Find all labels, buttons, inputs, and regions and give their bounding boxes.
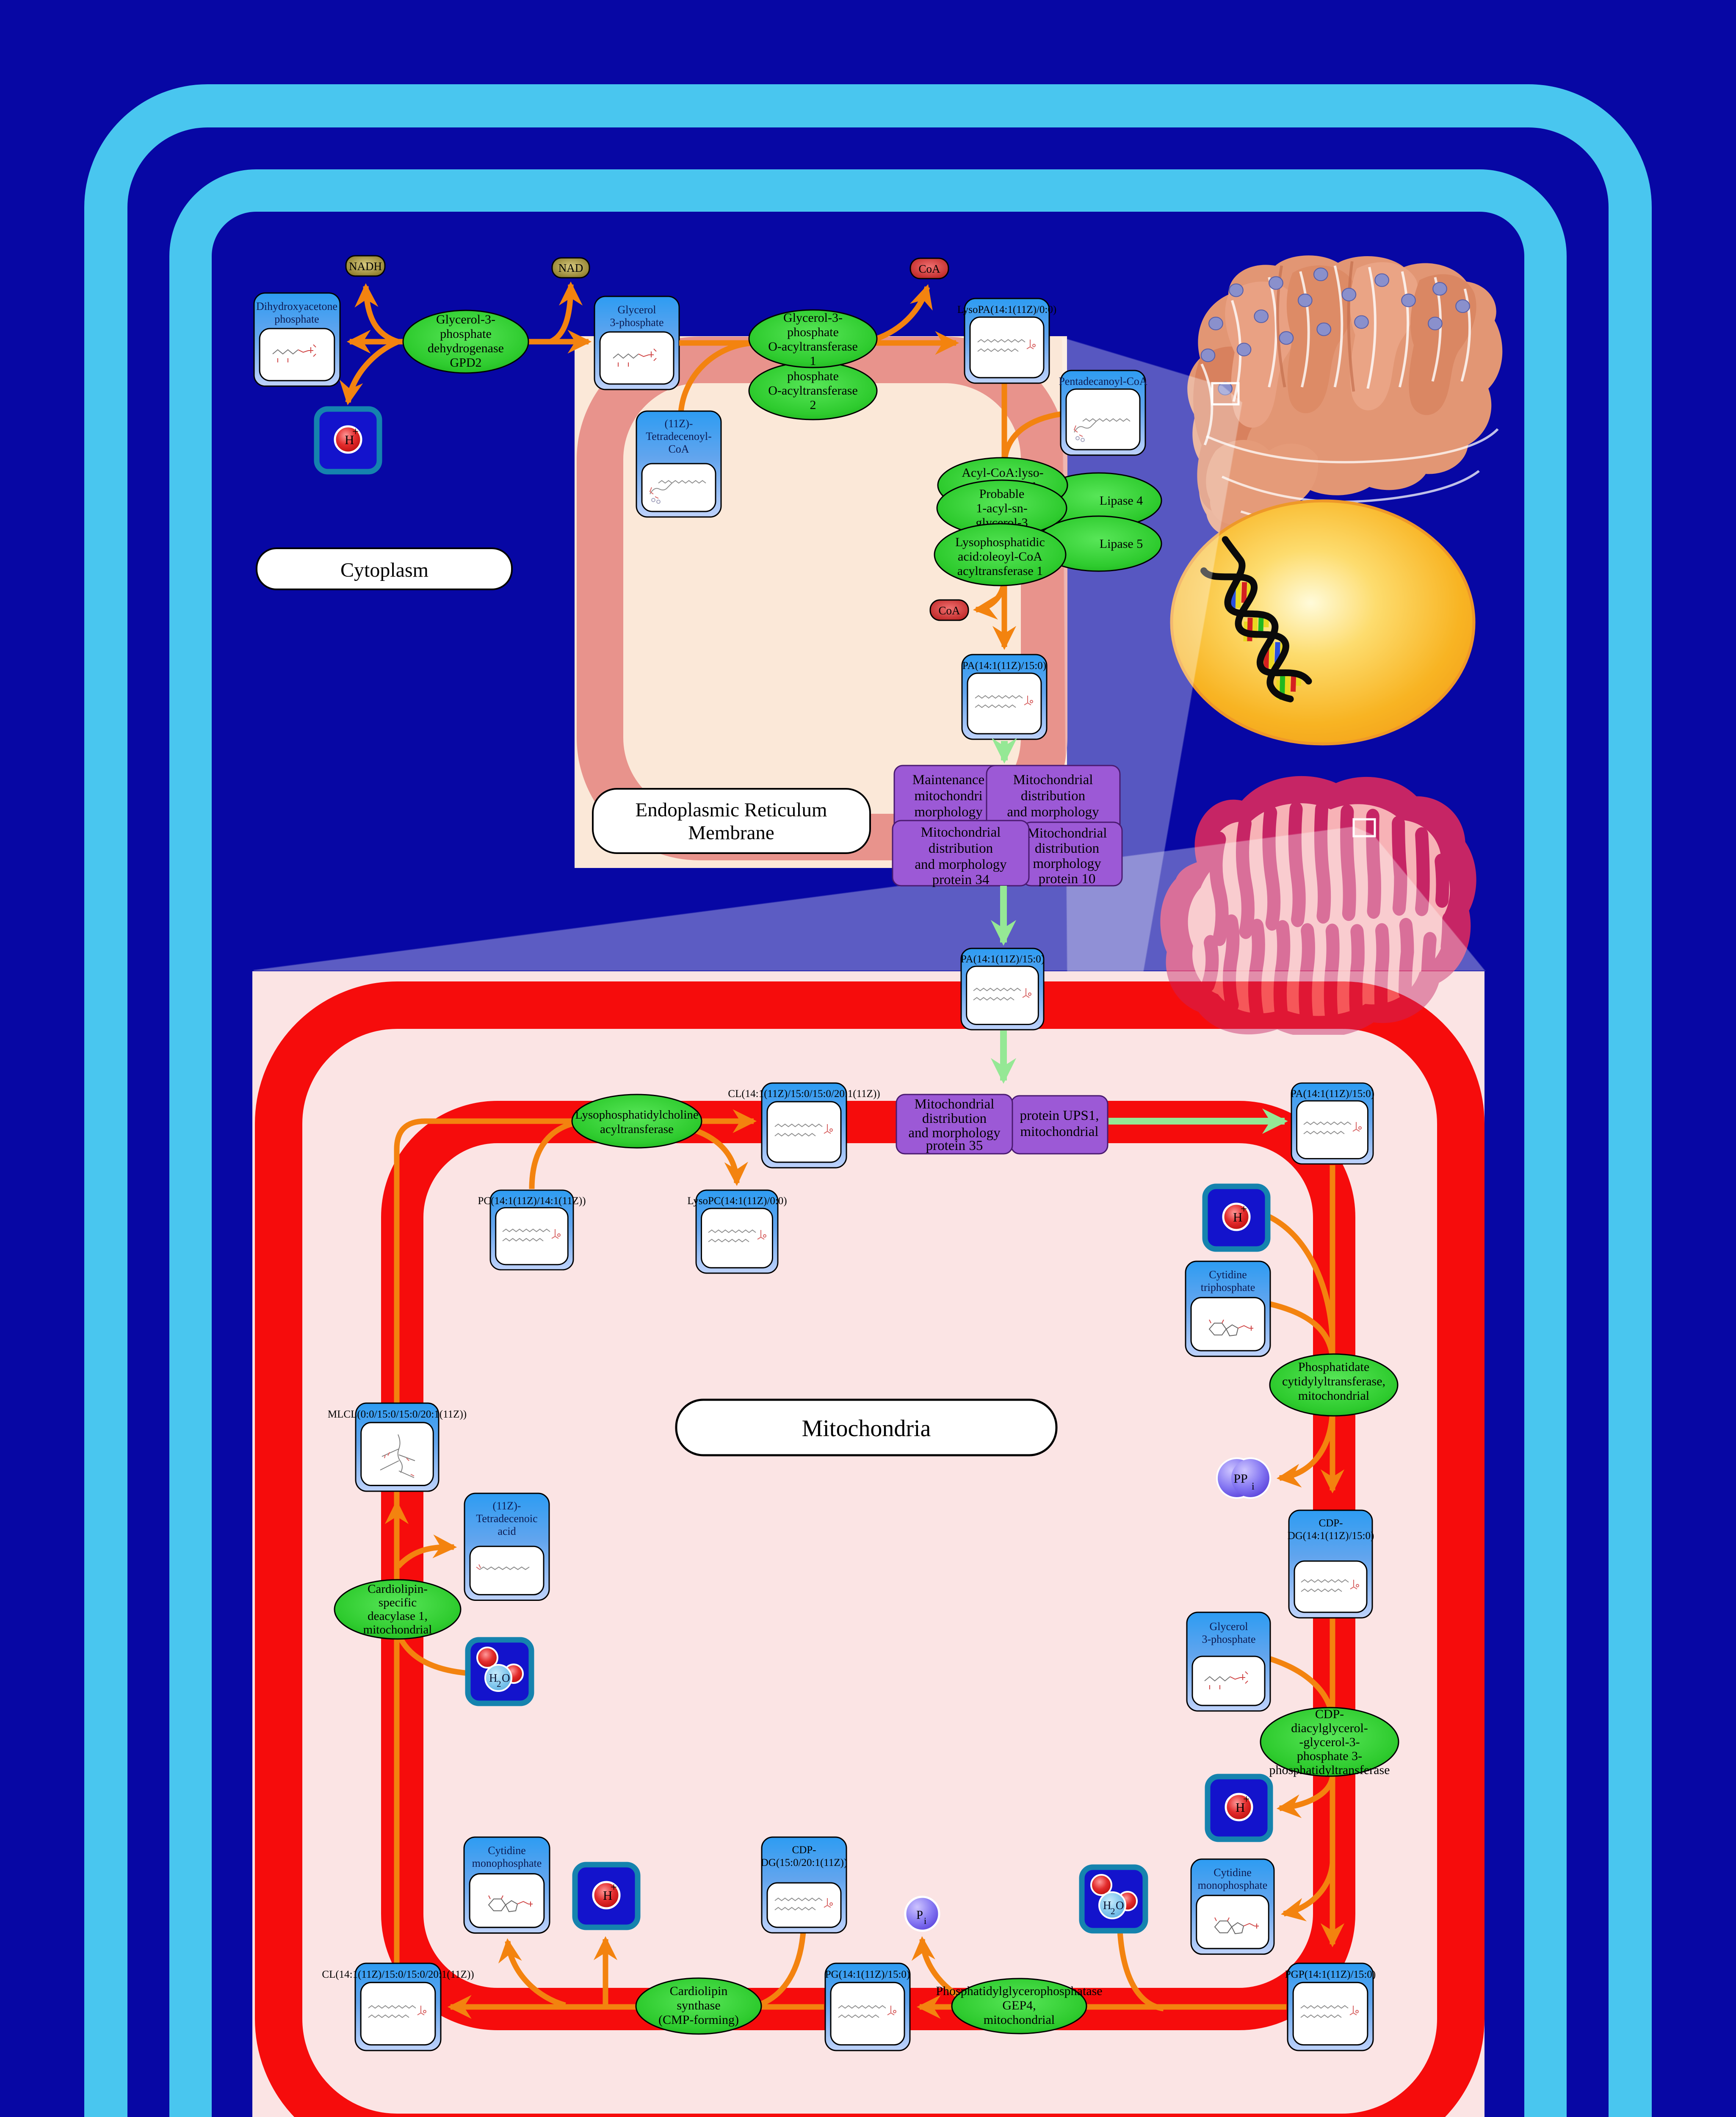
- svg-text:mitochondrial: mitochondrial: [1020, 1124, 1098, 1139]
- svg-text:PP: PP: [1233, 1472, 1247, 1486]
- svg-text:Glycerol: Glycerol: [1210, 1620, 1248, 1633]
- svg-text:distribution: distribution: [922, 1111, 987, 1126]
- svg-text:(11Z)-: (11Z)-: [493, 1500, 521, 1512]
- svg-text:1-acyl-sn-: 1-acyl-sn-: [976, 501, 1028, 515]
- svg-text:3-phosphate: 3-phosphate: [1202, 1633, 1255, 1645]
- svg-text:phosphate 3-: phosphate 3-: [1297, 1749, 1362, 1763]
- svg-text:cytidylyltransferase,: cytidylyltransferase,: [1282, 1374, 1385, 1388]
- svg-text:acyltransferase 1: acyltransferase 1: [957, 564, 1043, 578]
- svg-text:P: P: [916, 1909, 923, 1922]
- svg-text:Dihydroxyacetone: Dihydroxyacetone: [256, 300, 337, 312]
- svg-text:CL(14:1(11Z)/15:0/15:0/20:1(11: CL(14:1(11Z)/15:0/15:0/20:1(11Z)): [728, 1088, 880, 1100]
- svg-text:GPD2: GPD2: [450, 356, 481, 370]
- svg-text:Tetradecenoyl-: Tetradecenoyl-: [646, 430, 712, 442]
- svg-text:and morphology: and morphology: [1007, 804, 1099, 820]
- svg-text:Mitochondrial: Mitochondrial: [921, 825, 1001, 840]
- svg-text:morphology: morphology: [914, 804, 983, 820]
- svg-text:distribution: distribution: [929, 841, 993, 856]
- svg-text:CoA: CoA: [668, 443, 689, 455]
- svg-text:phosphate: phosphate: [440, 327, 492, 341]
- svg-text:PGP(14:1(11Z)/15:0): PGP(14:1(11Z)/15:0): [1285, 1969, 1376, 1980]
- svg-text:Probable: Probable: [979, 487, 1025, 501]
- svg-text:O-acyltransferase: O-acyltransferase: [768, 340, 858, 354]
- svg-text:MLCL(0:0/15:0/15:0/20:1(11Z)): MLCL(0:0/15:0/15:0/20:1(11Z)): [328, 1409, 467, 1420]
- svg-text:dehydrogenase: dehydrogenase: [428, 341, 504, 355]
- svg-text:Glycerol-3-: Glycerol-3-: [436, 312, 495, 326]
- svg-text:protein 10: protein 10: [1039, 871, 1096, 887]
- svg-text:Pentadecanoyl-CoA: Pentadecanoyl-CoA: [1059, 375, 1147, 387]
- svg-text:O-acyltransferase: O-acyltransferase: [768, 384, 858, 398]
- svg-text:Mitochondrial: Mitochondrial: [1013, 772, 1093, 788]
- svg-text:Lysophosphatidylcholine: Lysophosphatidylcholine: [575, 1108, 699, 1122]
- svg-text:monophosphate: monophosphate: [1198, 1879, 1268, 1891]
- svg-text:monophosphate: monophosphate: [472, 1857, 542, 1869]
- svg-text:LysoPA(14:1(11Z)/0:0): LysoPA(14:1(11Z)/0:0): [957, 304, 1056, 315]
- svg-text:phosphate: phosphate: [274, 313, 319, 325]
- svg-text:(CMP-forming): (CMP-forming): [658, 2013, 739, 2027]
- svg-text:PA(14:1(11Z)/15:0): PA(14:1(11Z)/15:0): [961, 953, 1045, 965]
- svg-text:mitochondrial: mitochondrial: [363, 1623, 432, 1636]
- svg-text:Cytidine: Cytidine: [488, 1844, 526, 1857]
- svg-text:phosphatidyltransferase: phosphatidyltransferase: [1269, 1763, 1390, 1777]
- svg-text:CDP-: CDP-: [1319, 1517, 1343, 1529]
- svg-text:Mitochondrial: Mitochondrial: [915, 1097, 995, 1112]
- svg-text:NAD: NAD: [558, 262, 583, 274]
- svg-text:CoA: CoA: [918, 263, 940, 275]
- svg-text:diacylglycerol-: diacylglycerol-: [1291, 1721, 1368, 1735]
- svg-text:Phosphatidate: Phosphatidate: [1298, 1360, 1369, 1374]
- svg-text:specific: specific: [379, 1596, 417, 1609]
- svg-text:LysoPC(14:1(11Z)/0:0): LysoPC(14:1(11Z)/0:0): [687, 1195, 787, 1207]
- svg-text:1: 1: [810, 354, 816, 368]
- svg-text:mitochondrial: mitochondrial: [984, 2013, 1055, 2027]
- svg-text:DG(15:0/20:1(11Z)): DG(15:0/20:1(11Z)): [761, 1857, 848, 1868]
- svg-text:protein 34: protein 34: [932, 872, 990, 887]
- svg-text:PA(14:1(11Z)/15:0): PA(14:1(11Z)/15:0): [962, 660, 1046, 672]
- svg-text:Maintenance: Maintenance: [912, 772, 984, 788]
- svg-text:Tetradecenoic: Tetradecenoic: [476, 1512, 537, 1525]
- svg-text:acid:oleoyl-CoA: acid:oleoyl-CoA: [958, 550, 1042, 564]
- svg-text:Lysophosphatidic: Lysophosphatidic: [955, 535, 1045, 549]
- svg-text:phosphate: phosphate: [787, 369, 839, 383]
- svg-text:mitochondri: mitochondri: [914, 788, 982, 804]
- svg-text:CDP-: CDP-: [1315, 1707, 1344, 1721]
- svg-text:Cytoplasm: Cytoplasm: [340, 559, 428, 581]
- svg-text:acyltransferase: acyltransferase: [600, 1122, 674, 1136]
- svg-text:Lipase 4: Lipase 4: [1100, 494, 1143, 508]
- svg-text:Glycerol: Glycerol: [618, 304, 656, 316]
- svg-text:PA(14:1(11Z)/15:0): PA(14:1(11Z)/15:0): [1291, 1088, 1374, 1100]
- svg-text:CoA: CoA: [938, 604, 960, 617]
- svg-text:PC(14:1(11Z)/14:1(11Z)): PC(14:1(11Z)/14:1(11Z)): [478, 1195, 586, 1207]
- svg-text:protein 35: protein 35: [926, 1138, 983, 1153]
- svg-text:Cytidine: Cytidine: [1209, 1269, 1247, 1281]
- svg-text:Membrane: Membrane: [688, 822, 774, 844]
- svg-text:Mitochondrial: Mitochondrial: [1027, 826, 1107, 841]
- svg-text:Cardiolipin-: Cardiolipin-: [368, 1582, 428, 1596]
- svg-text:DG(14:1(11Z)/15:0): DG(14:1(11Z)/15:0): [1288, 1530, 1374, 1542]
- svg-text:acid: acid: [498, 1525, 516, 1537]
- svg-text:phosphate: phosphate: [787, 325, 839, 339]
- svg-text:distribution: distribution: [1035, 841, 1099, 856]
- svg-text:deacylase 1,: deacylase 1,: [368, 1609, 428, 1623]
- svg-text:distribution: distribution: [1021, 788, 1085, 804]
- svg-text:Cardiolipin: Cardiolipin: [670, 1984, 728, 1998]
- svg-text:protein UPS1,: protein UPS1,: [1020, 1108, 1099, 1123]
- svg-text:3-phosphate: 3-phosphate: [610, 316, 663, 329]
- svg-text:Mitochondria: Mitochondria: [802, 1415, 931, 1442]
- svg-text:-glycerol-3-: -glycerol-3-: [1299, 1735, 1360, 1749]
- svg-text:Endoplasmic Reticulum: Endoplasmic Reticulum: [636, 799, 827, 821]
- svg-text:i: i: [1252, 1481, 1255, 1492]
- svg-text:PG(14:1(11Z)/15:0): PG(14:1(11Z)/15:0): [825, 1969, 910, 1980]
- svg-text:Acyl-CoA:lyso-: Acyl-CoA:lyso-: [962, 466, 1043, 480]
- svg-text:GEP4,: GEP4,: [1002, 1998, 1036, 2012]
- svg-text:Glycerol-3-: Glycerol-3-: [783, 311, 843, 325]
- svg-text:Lipase 5: Lipase 5: [1100, 537, 1143, 551]
- svg-text:i: i: [924, 1915, 926, 1926]
- svg-text:(11Z)-: (11Z)-: [665, 417, 693, 430]
- svg-text:NADH: NADH: [349, 260, 382, 273]
- svg-text:CDP-: CDP-: [792, 1844, 816, 1856]
- svg-text:CL(14:1(11Z)/15:0/15:0/20:1(11: CL(14:1(11Z)/15:0/15:0/20:1(11Z)): [322, 1969, 474, 1980]
- svg-text:Cytidine: Cytidine: [1214, 1866, 1252, 1879]
- svg-text:triphosphate: triphosphate: [1201, 1281, 1255, 1293]
- svg-text:2: 2: [810, 398, 816, 412]
- svg-text:synthase: synthase: [677, 1998, 720, 2012]
- svg-text:Phosphatidylglycerophosphatase: Phosphatidylglycerophosphatase: [936, 1984, 1102, 1998]
- svg-text:morphology: morphology: [1033, 856, 1101, 871]
- svg-text:and morphology: and morphology: [915, 857, 1007, 872]
- svg-text:mitochondrial: mitochondrial: [1298, 1389, 1369, 1403]
